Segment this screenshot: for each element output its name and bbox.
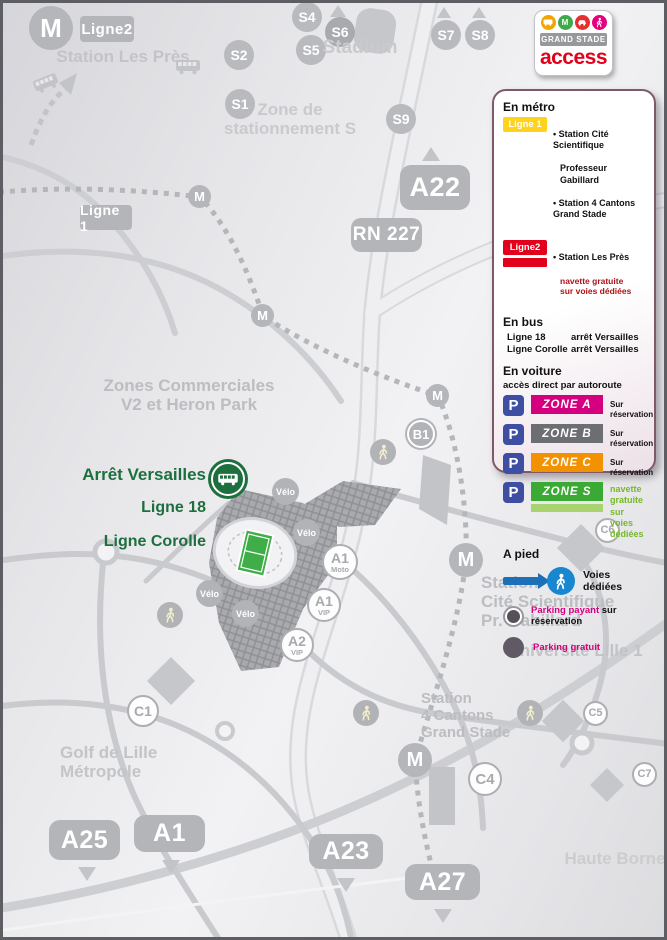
bus-icon xyxy=(32,73,60,95)
parking-c-marker: C5 xyxy=(583,701,608,726)
zone-s-green-strip xyxy=(531,504,603,512)
parking-s-marker: S2 xyxy=(224,40,254,70)
zone-a1-moto-marker: A1Moto xyxy=(322,544,358,580)
road-label-a25: A25 xyxy=(49,820,120,860)
velo-pin: Vélo xyxy=(293,519,320,546)
ligne2-note: navette gratuite sur voies dédiées xyxy=(553,276,631,296)
road-label-a1: A1 xyxy=(134,815,205,852)
legend-bus-heading: En bus xyxy=(503,315,647,329)
parking-s-marker: S7 xyxy=(431,20,461,50)
metro-station-icon: M xyxy=(251,304,274,327)
bus-stop-label: Arrêt Versailles Ligne 18 Ligne Corolle xyxy=(66,449,206,568)
zone-a2-vip-marker: A2VIP xyxy=(280,628,314,662)
metro-station-icon: M xyxy=(398,743,432,777)
parking-paid-row: Parking payant sur réservation xyxy=(503,605,647,627)
pedestrian-pin xyxy=(370,439,396,465)
zone-a-badge: ZONE A xyxy=(531,395,603,414)
road-label-a22: A22 xyxy=(400,165,470,210)
parking-p-icon: P xyxy=(503,453,524,474)
parking-c-marker: C1 xyxy=(127,695,159,727)
parking-free-row: Parking gratuit xyxy=(503,637,647,658)
parking-s-marker: S4 xyxy=(292,2,322,32)
parking-p-icon: P xyxy=(503,395,524,416)
walker-icon xyxy=(553,573,569,590)
access-map: Ligne2 Ligne 1 A22 RN 227 A25 A1 A23 A27… xyxy=(0,0,667,940)
zone-a1-vip-marker: A1VIP xyxy=(307,588,341,622)
legend-ligne1-row: Ligne 1 • Station Cité Scientifique Prof… xyxy=(503,117,647,232)
bus-icon xyxy=(217,473,239,486)
parking-c-marker: C7 xyxy=(632,762,657,787)
ligne1-stations: • Station Cité Scientifique Professeur G… xyxy=(553,117,647,232)
ligne1-badge: Ligne 1 xyxy=(503,117,547,132)
walker-icon xyxy=(359,705,374,721)
zone-a-row: P ZONE A Sur réservation xyxy=(503,395,647,420)
parking-b1-marker: B1 xyxy=(407,420,435,448)
parking-p-icon: P xyxy=(503,482,524,503)
road-label-a23: A23 xyxy=(309,834,383,869)
ligne2-badge: Ligne2 xyxy=(503,240,547,255)
pedestrian-pin xyxy=(517,700,543,726)
parking-s-marker: S8 xyxy=(465,20,495,50)
zone-b-row: P ZONE B Sur réservation xyxy=(503,424,647,449)
bus-stop-pin xyxy=(211,462,245,496)
zone-a-note: Sur réservation xyxy=(610,400,653,420)
legend-walk-row: Voies dédiées xyxy=(503,567,647,595)
zone-b-badge: ZONE B xyxy=(531,424,603,443)
velo-pin: Vélo xyxy=(196,580,223,607)
logo-grand-stade-bar: GRAND STADE xyxy=(540,33,607,46)
bus-line: Ligne 18 xyxy=(507,332,571,345)
road-label-ligne1: Ligne 1 xyxy=(80,205,132,230)
zone-s-row: P ZONE S navette gratuite sur voies dédi… xyxy=(503,482,647,540)
area-label-stadium: Stadium xyxy=(310,37,410,58)
road-label-a27: A27 xyxy=(405,864,480,900)
pedestrian-icon xyxy=(592,15,607,30)
zone-s-note: navette gratuite sur voies dédiées xyxy=(610,484,647,540)
metro-station-icon: M xyxy=(449,543,483,577)
ligne2-stations: • Station Les Près navette gratuite sur … xyxy=(553,240,631,307)
zone-b-note: Sur réservation xyxy=(610,429,653,449)
legend-panel: En métro Ligne 1 • Station Cité Scientif… xyxy=(492,89,656,473)
car-icon xyxy=(575,15,590,30)
parking-c-marker: C4 xyxy=(468,762,502,796)
parking-free-label: Parking gratuit xyxy=(533,642,600,653)
walker-icon xyxy=(523,705,538,721)
velo-pin: Vélo xyxy=(232,600,259,627)
metro-station-icon: M xyxy=(29,6,73,50)
blue-arrow-icon xyxy=(503,577,539,585)
walk-pin-icon xyxy=(547,567,575,595)
ligne2-red-strip xyxy=(503,258,547,267)
velo-pin: Vélo xyxy=(272,478,299,505)
bus-line: Ligne Corolle xyxy=(507,344,571,357)
metro-icon: M xyxy=(558,15,573,30)
zone-c-note: Sur réservation xyxy=(610,458,653,478)
zone-c-badge: ZONE C xyxy=(531,453,603,472)
area-label-zone-s: Zone de stationnement S xyxy=(199,100,381,138)
legend-walk-heading: A pied xyxy=(503,547,647,561)
logo-mode-icons: M xyxy=(541,15,607,30)
road-label-ligne2: Ligne2 xyxy=(80,16,134,42)
grand-stade-access-logo: M GRAND STADE access xyxy=(534,10,613,76)
legend-car-heading: En voiture xyxy=(503,364,647,378)
area-label-golf: Golf de Lille Métropole xyxy=(60,743,157,781)
zone-s-badge-stack: ZONE S xyxy=(531,482,603,512)
walk-note: Voies dédiées xyxy=(583,569,647,593)
parking-paid-icon xyxy=(505,608,522,625)
bus-route xyxy=(31,60,200,145)
area-label-les-pres: Station Les Près xyxy=(43,47,203,66)
area-label-commerciales: Zones Commerciales V2 et Heron Park xyxy=(89,376,289,414)
metro-station-icon: M xyxy=(188,185,211,208)
walker-icon xyxy=(376,444,391,460)
road-label-rn227: RN 227 xyxy=(351,218,422,252)
logo-access-text: access xyxy=(540,47,607,68)
legend-car-subheading: accès direct par autoroute xyxy=(503,380,647,391)
bus-icon xyxy=(541,15,556,30)
parking-paid-label: Parking payant xyxy=(531,605,599,616)
legend-metro-heading: En métro xyxy=(503,100,647,114)
zone-s-badge: ZONE S xyxy=(531,482,603,501)
area-label-haute-borne: Haute Borne xyxy=(535,849,667,868)
parking-s-marker: S9 xyxy=(386,104,416,134)
pedestrian-pin xyxy=(353,700,379,726)
ligne2-badge-stack: Ligne2 xyxy=(503,240,547,307)
metro-station-icon: M xyxy=(426,384,449,407)
bus-stop: arrêt Versailles xyxy=(571,344,647,357)
parking-p-icon: P xyxy=(503,424,524,445)
bus-stop: arrêt Versailles xyxy=(571,332,647,345)
zone-c-row: P ZONE C Sur réservation xyxy=(503,453,647,478)
parking-free-icon xyxy=(503,637,524,658)
walker-icon xyxy=(163,607,178,623)
legend-bus-rows: Ligne 18 arrêt Versailles Ligne Corolle … xyxy=(503,332,647,358)
area-label-4-cantons: Station 4 Cantons Grand Stade xyxy=(421,691,510,741)
pedestrian-pin xyxy=(157,602,183,628)
legend-ligne2-row: Ligne2 • Station Les Près navette gratui… xyxy=(503,240,647,307)
